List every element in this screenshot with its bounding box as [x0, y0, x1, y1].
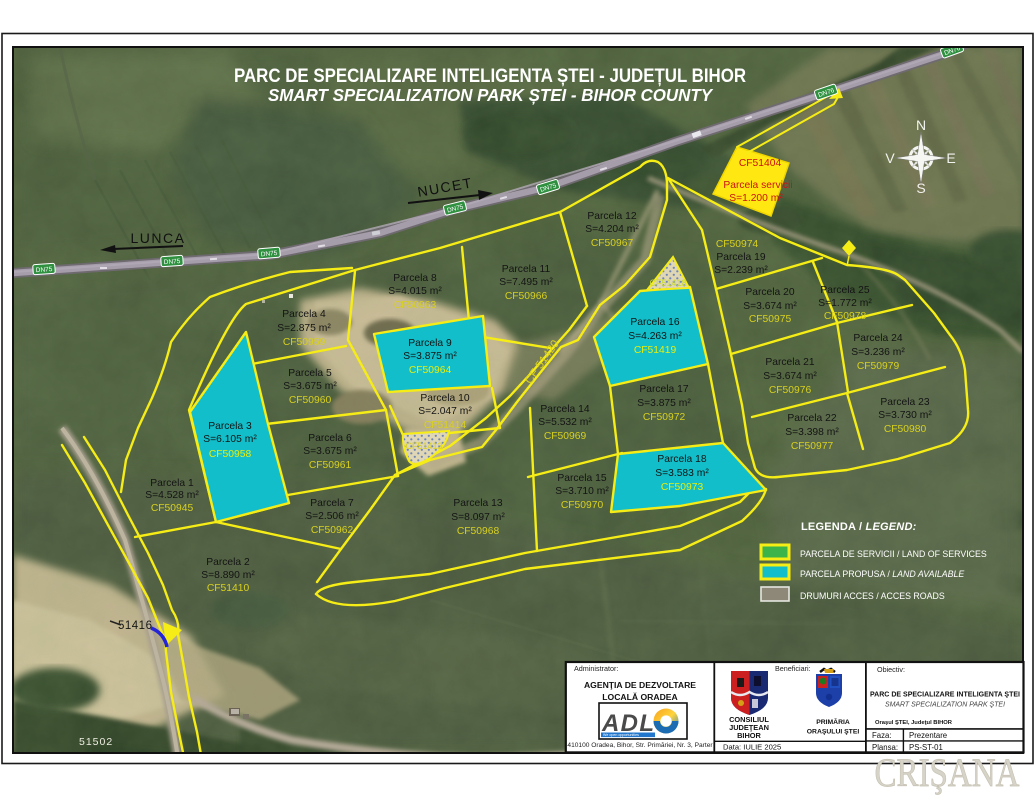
svg-text:Parcela 2: Parcela 2	[206, 557, 250, 568]
svg-text:S=2.875 m²: S=2.875 m²	[277, 323, 331, 334]
svg-text:Parcela 23: Parcela 23	[880, 397, 930, 408]
svg-text:Parcela 24: Parcela 24	[853, 333, 903, 344]
svg-text:S=4.204 m²: S=4.204 m²	[585, 224, 639, 235]
svg-text:CF50963: CF50963	[394, 300, 437, 311]
svg-text:CF51418: CF51418	[649, 278, 686, 288]
svg-text:CF50974: CF50974	[716, 239, 759, 250]
svg-text:E: E	[946, 150, 955, 166]
svg-text:We open opportunities: We open opportunities	[603, 733, 639, 737]
svg-text:CF50969: CF50969	[544, 431, 587, 442]
svg-text:S=2.239 m²: S=2.239 m²	[714, 265, 768, 276]
svg-text:CF50977: CF50977	[791, 441, 834, 452]
svg-text:Parcela 1: Parcela 1	[150, 478, 194, 489]
svg-text:Data: IULIE 2025: Data: IULIE 2025	[723, 743, 781, 752]
svg-text:Parcela 10: Parcela 10	[420, 393, 470, 404]
svg-text:PARCELA DE SERVICII / LAND OF: PARCELA DE SERVICII / LAND OF SERVICES	[800, 549, 987, 559]
svg-text:DRUMURI ACCES / ACCES ROADS: DRUMURI ACCES / ACCES ROADS	[800, 591, 945, 601]
svg-text:CF50960: CF50960	[289, 395, 332, 406]
svg-text:CF50967: CF50967	[591, 238, 634, 249]
svg-text:CF50972: CF50972	[643, 412, 686, 423]
svg-text:S=1.772 m²: S=1.772 m²	[818, 298, 872, 309]
svg-text:Parcela servicii: Parcela servicii	[723, 180, 792, 191]
svg-text:Parcela 20: Parcela 20	[745, 287, 795, 298]
svg-text:S=3.674 m²: S=3.674 m²	[743, 301, 797, 312]
svg-text:S=3.875 m²: S=3.875 m²	[637, 398, 691, 409]
svg-text:Parcela 25: Parcela 25	[820, 285, 870, 296]
svg-text:PARC DE SPECIALIZARE INTELIGEN: PARC DE SPECIALIZARE INTELIGENTA ȘTEI - …	[234, 66, 746, 87]
svg-text:CF51410: CF51410	[207, 583, 250, 594]
svg-text:Beneficiari:: Beneficiari:	[775, 664, 811, 673]
svg-text:S=7.495 m²: S=7.495 m²	[499, 277, 553, 288]
svg-text:CF51404: CF51404	[739, 158, 782, 169]
svg-text:S=3.398 m²: S=3.398 m²	[785, 427, 839, 438]
svg-text:S=3.730 m²: S=3.730 m²	[878, 410, 932, 421]
svg-text:Oraşul ŞTEI, Judeţul BIHOR: Oraşul ŞTEI, Judeţul BIHOR	[875, 720, 953, 726]
svg-text:Parcela 17: Parcela 17	[639, 384, 689, 395]
svg-text:CF50961: CF50961	[309, 460, 352, 471]
svg-text:DN75: DN75	[36, 266, 53, 274]
svg-text:DN75: DN75	[164, 258, 181, 266]
svg-text:CF51419: CF51419	[634, 345, 677, 356]
svg-text:CF50970: CF50970	[561, 500, 604, 511]
svg-text:CF50980: CF50980	[884, 424, 927, 435]
svg-text:Parcela 13: Parcela 13	[453, 498, 503, 509]
svg-text:51416: 51416	[118, 620, 152, 632]
svg-text:N: N	[916, 117, 926, 133]
svg-text:S=8.097 m²: S=8.097 m²	[451, 512, 505, 523]
svg-text:Parcela 22: Parcela 22	[787, 413, 837, 424]
svg-text:Parcela 6: Parcela 6	[308, 433, 352, 444]
svg-text:LUNCA: LUNCA	[131, 230, 186, 246]
svg-text:Parcela 3: Parcela 3	[208, 421, 252, 432]
svg-text:S=3.675 m²: S=3.675 m²	[283, 381, 337, 392]
svg-text:Prezentare: Prezentare	[909, 731, 947, 740]
svg-text:PRIMĂRIA: PRIMĂRIA	[816, 717, 850, 726]
svg-text:S=4.528 m²: S=4.528 m²	[145, 490, 199, 501]
svg-text:S=2.506 m²: S=2.506 m²	[305, 511, 359, 522]
svg-text:S=5.532 m²: S=5.532 m²	[538, 417, 592, 428]
svg-text:CF50976: CF50976	[769, 385, 812, 396]
svg-text:ORAŞULUI ŞTEI: ORAŞULUI ŞTEI	[807, 729, 860, 736]
svg-text:S=3.675 m²: S=3.675 m²	[303, 446, 357, 457]
svg-text:51502: 51502	[79, 736, 113, 748]
svg-text:V: V	[885, 150, 895, 166]
svg-text:Parcela 7: Parcela 7	[310, 498, 354, 509]
svg-text:CF50979: CF50979	[857, 361, 900, 372]
svg-text:S=3.875 m²: S=3.875 m²	[403, 351, 457, 362]
svg-text:CF50975: CF50975	[749, 314, 792, 325]
svg-text:SMART SPECIALIZATION PARK ȘTEI: SMART SPECIALIZATION PARK ȘTEI - BIHOR C…	[268, 85, 713, 105]
svg-text:BIHOR: BIHOR	[737, 731, 761, 740]
svg-text:LEGENDA / LEGEND:: LEGENDA / LEGEND:	[801, 521, 917, 533]
svg-text:CF50966: CF50966	[505, 291, 548, 302]
svg-text:S=8.890 m²: S=8.890 m²	[201, 570, 255, 581]
svg-text:Parcela 4: Parcela 4	[282, 309, 326, 320]
svg-text:CF50959: CF50959	[283, 337, 326, 348]
svg-text:Parcela 14: Parcela 14	[540, 404, 590, 415]
svg-text:Parcela 15: Parcela 15	[557, 473, 607, 484]
svg-text:S=4.263 m²: S=4.263 m²	[628, 331, 682, 342]
svg-text:PARC DE SPECIALIZARE INTELIGEN: PARC DE SPECIALIZARE INTELIGENTA ŞTEI	[870, 690, 1020, 699]
svg-text:DN75: DN75	[261, 250, 279, 258]
svg-text:Parcela 16: Parcela 16	[630, 317, 680, 328]
svg-text:S: S	[916, 180, 925, 196]
svg-text:S=3.236 m²: S=3.236 m²	[851, 347, 905, 358]
svg-text:S=4.015 m²: S=4.015 m²	[388, 286, 442, 297]
svg-text:Faza:: Faza:	[872, 731, 892, 740]
svg-text:CF50968: CF50968	[457, 526, 500, 537]
svg-text:410100 Oradea, Bihor, Str. Pri: 410100 Oradea, Bihor, Str. Primăriei, Nr…	[567, 742, 713, 749]
svg-text:S=3.583 m²: S=3.583 m²	[655, 468, 709, 479]
svg-text:CF51413: CF51413	[405, 441, 442, 451]
svg-text:S=3.674 m²: S=3.674 m²	[763, 371, 817, 382]
svg-text:S=1.200 m²: S=1.200 m²	[729, 193, 783, 204]
svg-text:CF50978: CF50978	[824, 311, 867, 322]
svg-text:Parcela 8: Parcela 8	[393, 273, 437, 284]
svg-text:Administrator:: Administrator:	[574, 664, 618, 673]
svg-text:CF50958: CF50958	[209, 449, 252, 460]
svg-text:PARCELA PROPUSA / LAND AVAILAB: PARCELA PROPUSA / LAND AVAILABLE	[800, 569, 964, 579]
svg-text:CF50962: CF50962	[311, 525, 354, 536]
svg-text:S=3.710 m²: S=3.710 m²	[555, 486, 609, 497]
svg-text:Parcela 19: Parcela 19	[716, 252, 766, 263]
svg-text:LOCALĂ ORADEA: LOCALĂ ORADEA	[602, 692, 677, 702]
svg-text:CF50964: CF50964	[409, 365, 452, 376]
svg-text:Parcela 11: Parcela 11	[502, 264, 551, 275]
svg-text:SMART SPECIALIZATION PARK ŞTEI: SMART SPECIALIZATION PARK ŞTEI	[885, 700, 1006, 709]
svg-text:CRIŞANA: CRIŞANA	[875, 750, 1020, 795]
svg-text:Parcela 21: Parcela 21	[765, 357, 815, 368]
svg-text:Parcela 5: Parcela 5	[288, 368, 332, 379]
svg-text:S=2.047 m²: S=2.047 m²	[418, 406, 472, 417]
svg-text:AGENŢIA DE DEZVOLTARE: AGENŢIA DE DEZVOLTARE	[584, 680, 696, 690]
svg-text:Parcela 9: Parcela 9	[408, 338, 452, 349]
svg-text:CF50945: CF50945	[151, 503, 194, 514]
svg-text:CF50973: CF50973	[661, 482, 704, 493]
svg-text:S=6.105 m²: S=6.105 m²	[203, 434, 257, 445]
svg-text:Obiectiv:: Obiectiv:	[877, 665, 905, 674]
svg-text:Parcela 12: Parcela 12	[587, 211, 637, 222]
svg-text:CF51414: CF51414	[424, 420, 467, 431]
svg-text:Parcela 18: Parcela 18	[657, 454, 707, 465]
